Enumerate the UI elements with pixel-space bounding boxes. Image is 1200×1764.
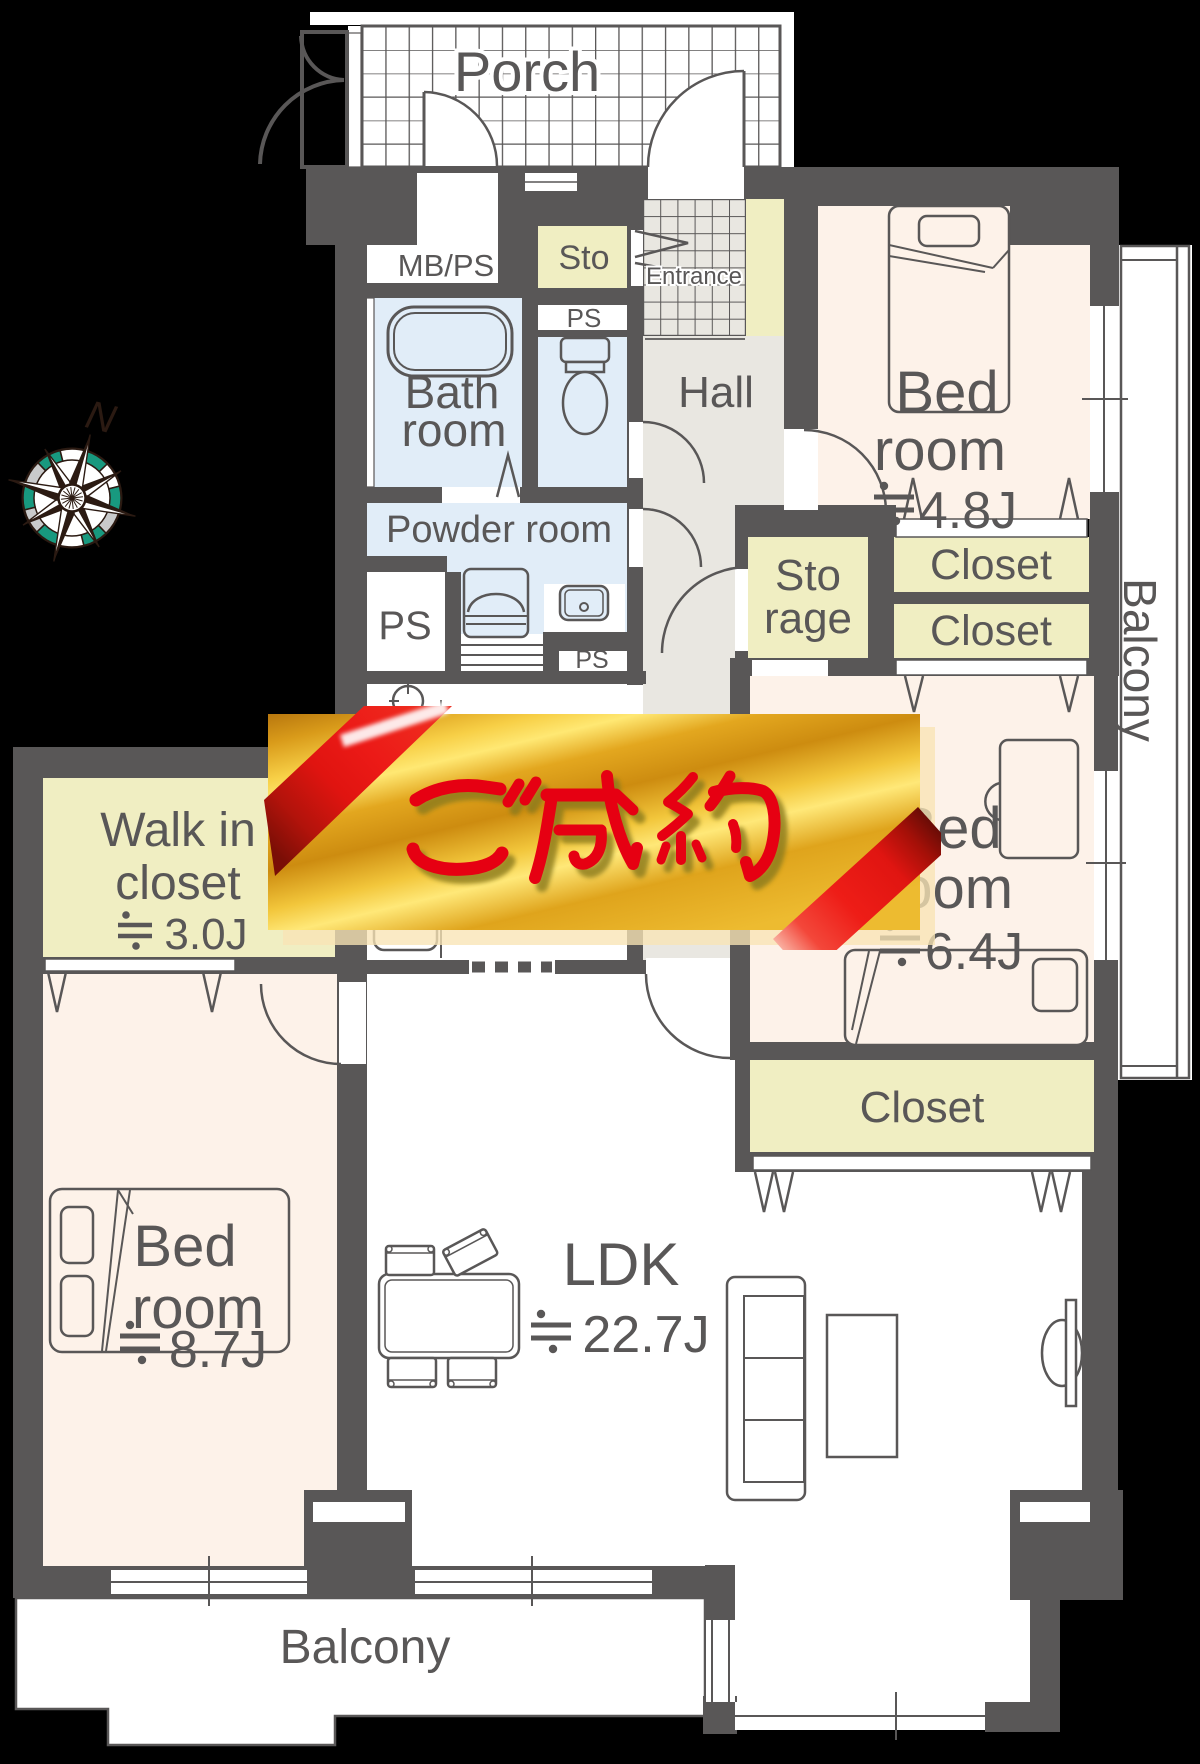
svg-text:6.4J: 6.4J bbox=[925, 923, 1023, 981]
svg-text:Hall: Hall bbox=[678, 368, 754, 417]
svg-text:rage: rage bbox=[764, 594, 852, 643]
svg-text:MB/PS: MB/PS bbox=[398, 248, 494, 283]
svg-text:Balcony: Balcony bbox=[1114, 578, 1166, 742]
svg-text:PS: PS bbox=[567, 303, 602, 333]
svg-text:4.8J: 4.8J bbox=[919, 482, 1017, 540]
svg-text:PS: PS bbox=[378, 604, 431, 648]
svg-text:Closet: Closet bbox=[860, 1083, 985, 1132]
svg-text:Balcony: Balcony bbox=[280, 1621, 451, 1674]
svg-text:3.0J: 3.0J bbox=[164, 910, 247, 959]
svg-text:Closet: Closet bbox=[930, 607, 1052, 655]
svg-text:Closet: Closet bbox=[930, 541, 1052, 589]
svg-text:Porch: Porch bbox=[454, 40, 600, 103]
svg-text:room: room bbox=[874, 418, 1006, 483]
svg-text:closet: closet bbox=[115, 857, 240, 910]
svg-text:PS: PS bbox=[575, 646, 608, 674]
svg-text:Entrance: Entrance bbox=[646, 263, 742, 290]
svg-text:Walk in: Walk in bbox=[100, 804, 256, 857]
svg-text:8.7J: 8.7J bbox=[169, 1321, 267, 1379]
svg-text:LDK: LDK bbox=[563, 1231, 680, 1298]
svg-text:Powder room: Powder room bbox=[386, 509, 612, 551]
svg-text:room: room bbox=[402, 404, 507, 456]
svg-text:22.7J: 22.7J bbox=[582, 1306, 709, 1364]
svg-text:Bed: Bed bbox=[133, 1214, 236, 1279]
svg-text:Sto: Sto bbox=[558, 239, 609, 277]
svg-text:Bed: Bed bbox=[895, 360, 998, 425]
svg-text:Sto: Sto bbox=[775, 551, 841, 600]
